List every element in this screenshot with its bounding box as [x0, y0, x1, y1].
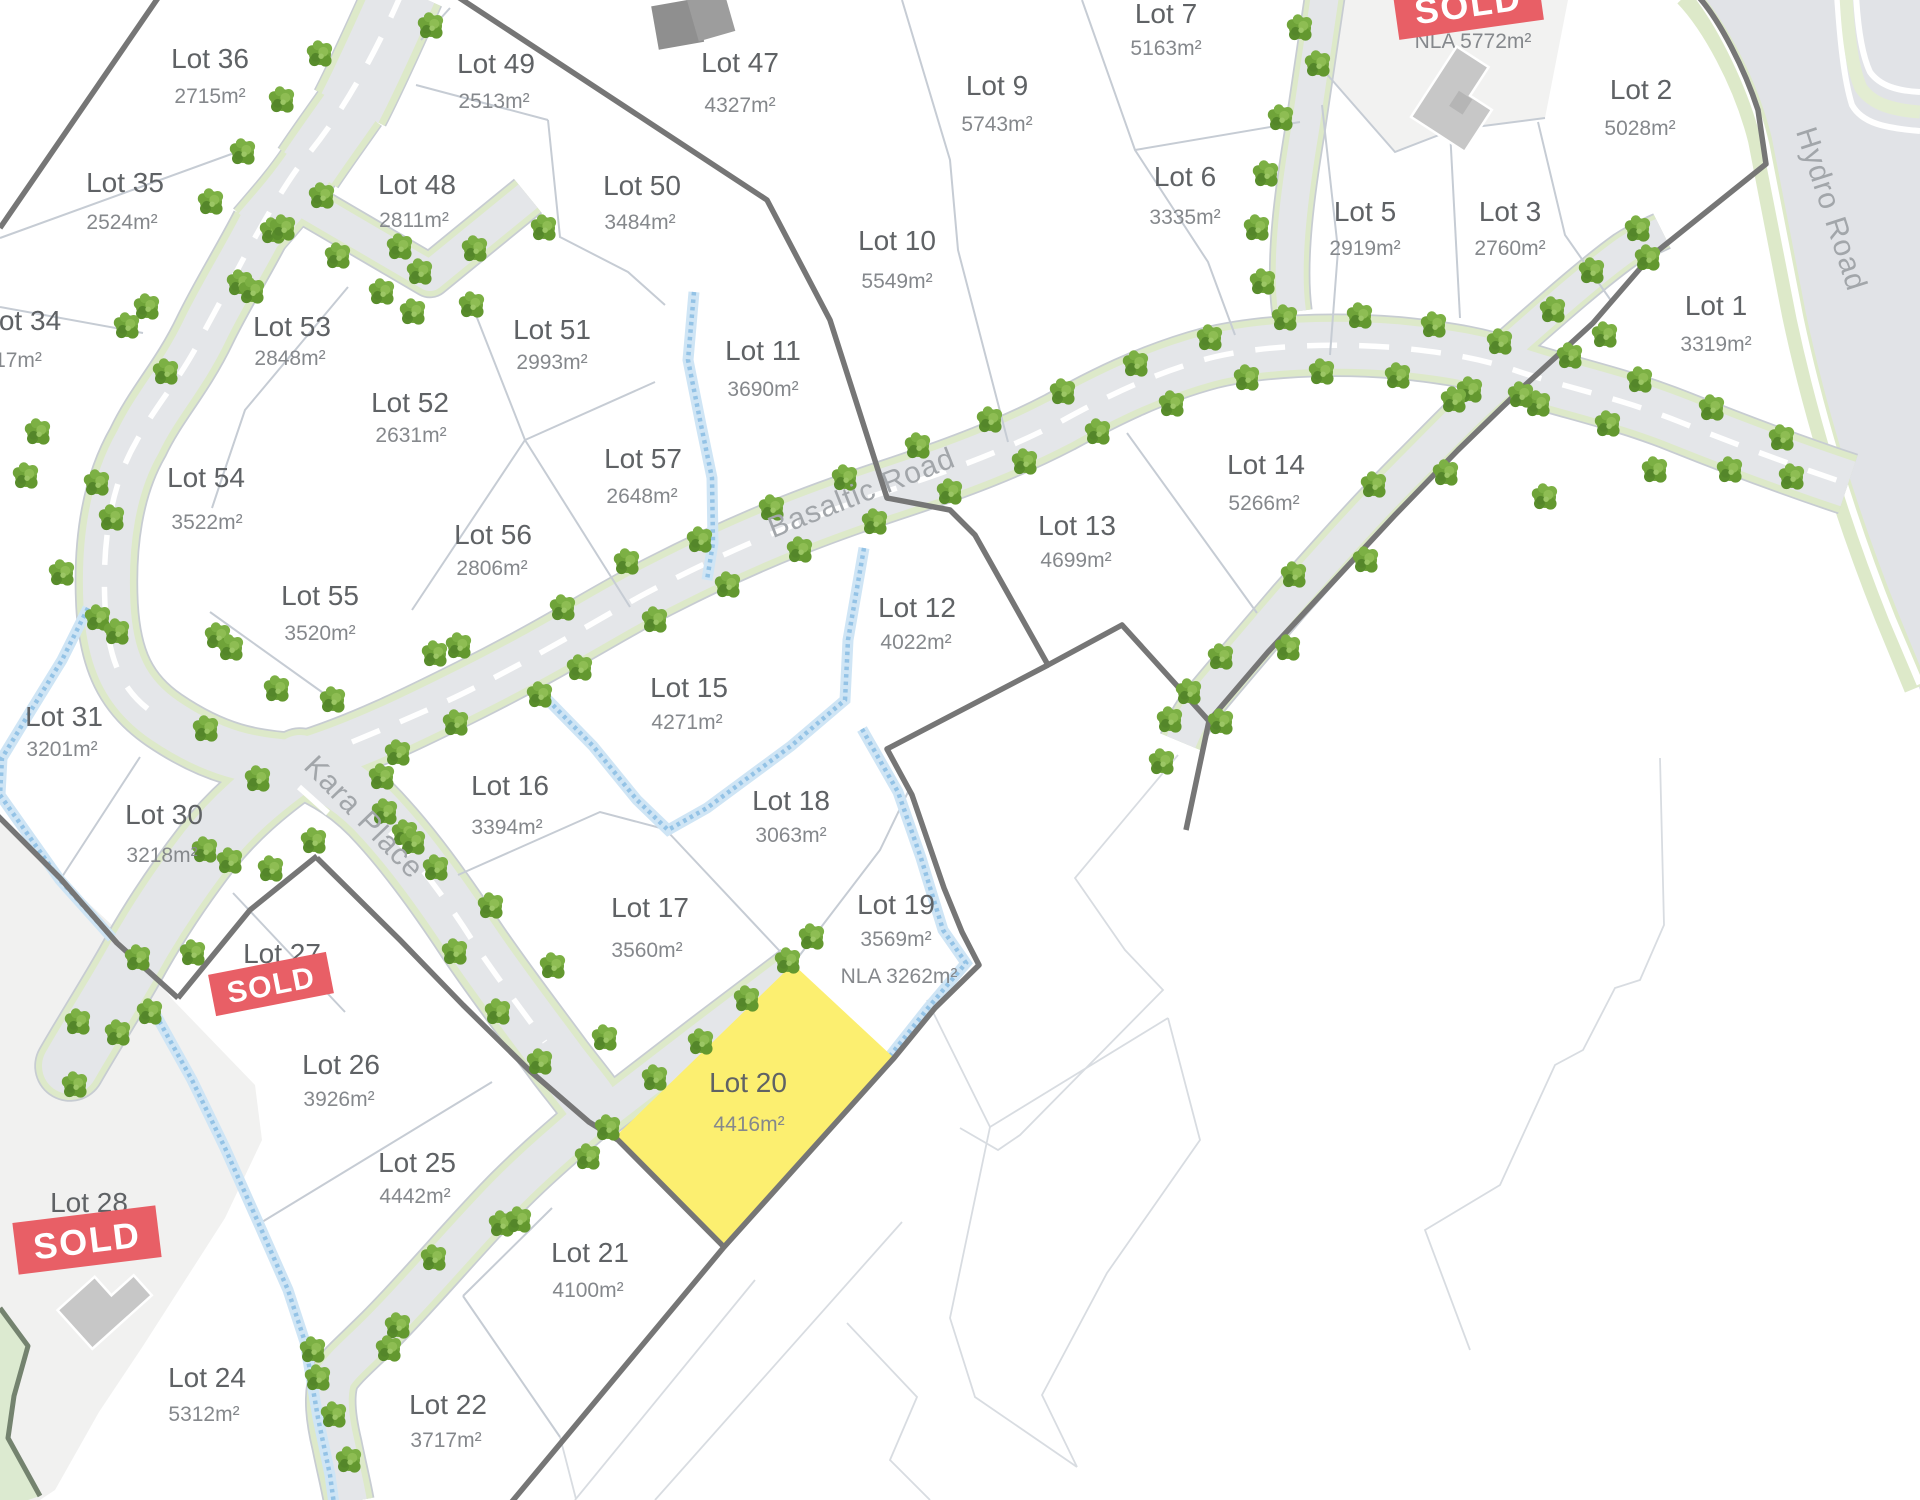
svg-text:3218m²: 3218m² [126, 844, 197, 867]
svg-text:Lot 5: Lot 5 [1334, 196, 1396, 227]
svg-text:Lot 24: Lot 24 [168, 1362, 246, 1393]
svg-text:Lot 54: Lot 54 [167, 462, 245, 493]
svg-text:2760m²: 2760m² [1474, 237, 1545, 260]
svg-text:Lot 57: Lot 57 [604, 443, 682, 474]
svg-text:Lot 10: Lot 10 [858, 225, 936, 256]
svg-text:3201m²: 3201m² [26, 738, 97, 761]
svg-text:17m²: 17m² [0, 349, 42, 372]
svg-text:4100m²: 4100m² [552, 1279, 623, 1302]
svg-text:Lot 1: Lot 1 [1685, 290, 1747, 321]
svg-text:Lot 47: Lot 47 [701, 47, 779, 78]
svg-text:Lot 25: Lot 25 [378, 1147, 456, 1178]
svg-text:Lot 35: Lot 35 [86, 167, 164, 198]
svg-text:NLA 3262m²: NLA 3262m² [841, 965, 958, 988]
svg-text:Lot 16: Lot 16 [471, 770, 549, 801]
svg-text:5743m²: 5743m² [961, 113, 1032, 136]
svg-text:Lot 36: Lot 36 [171, 43, 249, 74]
svg-text:5163m²: 5163m² [1130, 37, 1201, 60]
svg-text:5266m²: 5266m² [1228, 492, 1299, 515]
svg-text:3484m²: 3484m² [604, 211, 675, 234]
svg-text:Lot 2: Lot 2 [1610, 74, 1672, 105]
svg-text:Lot 56: Lot 56 [454, 519, 532, 550]
svg-text:2631m²: 2631m² [375, 424, 446, 447]
svg-text:ot 34: ot 34 [0, 305, 61, 336]
svg-text:3690m²: 3690m² [727, 378, 798, 401]
svg-text:Lot 50: Lot 50 [603, 170, 681, 201]
svg-text:5312m²: 5312m² [168, 1403, 239, 1426]
svg-text:Lot 12: Lot 12 [878, 592, 956, 623]
svg-text:Lot 14: Lot 14 [1227, 449, 1305, 480]
svg-text:Lot 31: Lot 31 [25, 701, 103, 732]
svg-text:Lot 3: Lot 3 [1479, 196, 1541, 227]
svg-text:Lot 21: Lot 21 [551, 1237, 629, 1268]
svg-text:3522m²: 3522m² [171, 511, 242, 534]
svg-text:3335m²: 3335m² [1149, 206, 1220, 229]
svg-text:Lot 55: Lot 55 [281, 580, 359, 611]
svg-text:Lot 48: Lot 48 [378, 169, 456, 200]
svg-text:Lot 19: Lot 19 [857, 889, 935, 920]
svg-text:Lot 22: Lot 22 [409, 1389, 487, 1420]
svg-text:Lot 20: Lot 20 [709, 1067, 787, 1098]
svg-text:Lot 53: Lot 53 [253, 311, 331, 342]
svg-text:4022m²: 4022m² [880, 631, 951, 654]
svg-text:5028m²: 5028m² [1604, 117, 1675, 140]
svg-text:Lot 13: Lot 13 [1038, 510, 1116, 541]
svg-text:3394m²: 3394m² [471, 816, 542, 839]
svg-text:2919m²: 2919m² [1329, 237, 1400, 260]
svg-text:4327m²: 4327m² [704, 94, 775, 117]
svg-text:2993m²: 2993m² [516, 351, 587, 374]
svg-text:Lot 7: Lot 7 [1135, 0, 1197, 29]
svg-text:Lot 17: Lot 17 [611, 892, 689, 923]
svg-text:Lot 51: Lot 51 [513, 314, 591, 345]
svg-text:Lot 15: Lot 15 [650, 672, 728, 703]
svg-text:Lot 49: Lot 49 [457, 48, 535, 79]
svg-text:4699m²: 4699m² [1040, 549, 1111, 572]
svg-text:2806m²: 2806m² [456, 557, 527, 580]
svg-text:5549m²: 5549m² [861, 270, 932, 293]
svg-text:4416m²: 4416m² [713, 1113, 784, 1136]
svg-text:3560m²: 3560m² [611, 939, 682, 962]
svg-text:Lot 30: Lot 30 [125, 799, 203, 830]
svg-text:2524m²: 2524m² [86, 211, 157, 234]
svg-text:Lot 18: Lot 18 [752, 785, 830, 816]
svg-text:Lot 9: Lot 9 [966, 70, 1028, 101]
svg-text:Lot 52: Lot 52 [371, 387, 449, 418]
svg-text:3926m²: 3926m² [303, 1088, 374, 1111]
svg-text:3717m²: 3717m² [410, 1429, 481, 1452]
svg-text:2848m²: 2848m² [254, 347, 325, 370]
svg-text:3063m²: 3063m² [755, 824, 826, 847]
svg-text:Lot 26: Lot 26 [302, 1049, 380, 1080]
svg-text:3520m²: 3520m² [284, 622, 355, 645]
svg-text:3569m²: 3569m² [860, 928, 931, 951]
svg-text:Lot 6: Lot 6 [1154, 161, 1216, 192]
svg-text:Lot 11: Lot 11 [725, 335, 801, 366]
svg-text:4442m²: 4442m² [379, 1185, 450, 1208]
svg-text:2811m²: 2811m² [379, 209, 449, 232]
svg-text:3319m²: 3319m² [1680, 333, 1751, 356]
svg-text:4271m²: 4271m² [651, 711, 722, 734]
svg-text:2648m²: 2648m² [606, 485, 677, 508]
svg-text:2715m²: 2715m² [174, 85, 245, 108]
svg-text:2513m²: 2513m² [458, 90, 529, 113]
